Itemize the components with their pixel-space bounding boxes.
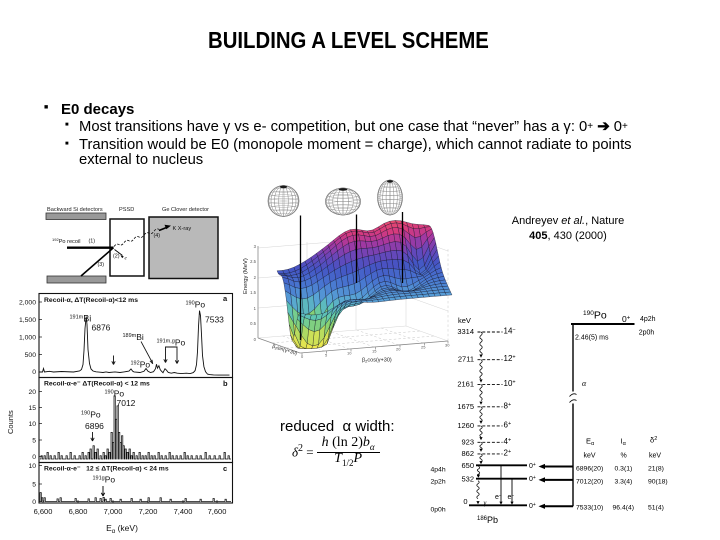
svg-text:4p2h: 4p2h: [640, 316, 656, 323]
svg-text:keV: keV: [649, 453, 661, 460]
svg-text:3.3(4): 3.3(4): [615, 479, 633, 486]
svg-text:6896(20): 6896(20): [576, 465, 603, 472]
svg-text:%: %: [621, 453, 627, 460]
svg-text:4p4h: 4p4h: [431, 467, 446, 474]
svg-text:0: 0: [463, 497, 467, 506]
svg-text:51(4): 51(4): [648, 504, 664, 511]
svg-text:532: 532: [461, 474, 474, 483]
svg-text:1675: 1675: [457, 402, 474, 411]
svg-text:0+: 0+: [529, 475, 536, 483]
svg-text:2+: 2+: [504, 448, 512, 457]
svg-text:7533(10): 7533(10): [576, 504, 603, 511]
svg-text:0+: 0+: [529, 502, 536, 510]
svg-text:keV: keV: [584, 453, 596, 460]
svg-text:923: 923: [461, 437, 474, 446]
svg-text:96.4(4): 96.4(4): [613, 504, 635, 511]
svg-text:6+: 6+: [504, 420, 512, 429]
svg-text:Eα: Eα: [586, 437, 595, 448]
svg-text:14−: 14−: [504, 327, 516, 336]
svg-text:90(18): 90(18): [648, 479, 668, 486]
svg-text:α: α: [582, 379, 587, 388]
svg-text:2.46(5) ms: 2.46(5) ms: [575, 334, 609, 341]
svg-text:186Pb: 186Pb: [477, 515, 498, 525]
svg-text:0p0h: 0p0h: [431, 506, 446, 513]
svg-text:e−: e−: [508, 493, 515, 501]
svg-text:10+: 10+: [504, 379, 516, 388]
svg-text:1260: 1260: [457, 421, 474, 430]
svg-text:Iα: Iα: [621, 437, 627, 448]
svg-text:190Po: 190Po: [583, 310, 607, 322]
svg-text:γ: γ: [484, 499, 487, 507]
svg-text:4+: 4+: [504, 437, 512, 446]
svg-text:862: 862: [461, 449, 474, 458]
svg-text:0+: 0+: [622, 314, 631, 324]
svg-text:0.3(1): 0.3(1): [615, 465, 633, 472]
svg-text:0+: 0+: [529, 462, 536, 470]
svg-text:8+: 8+: [504, 401, 512, 410]
svg-text:2p2h: 2p2h: [431, 479, 446, 486]
svg-text:21(8): 21(8): [648, 465, 664, 472]
svg-text:2161: 2161: [457, 380, 474, 389]
svg-text:12+: 12+: [504, 354, 516, 363]
svg-text:δ2: δ2: [650, 436, 657, 445]
svg-text:7012(20): 7012(20): [576, 479, 603, 486]
svg-text:650: 650: [461, 461, 474, 470]
svg-text:2711: 2711: [458, 355, 474, 364]
svg-text:3314: 3314: [457, 327, 474, 336]
svg-text:2p0h: 2p0h: [639, 329, 655, 336]
svg-text:keV: keV: [458, 316, 471, 325]
